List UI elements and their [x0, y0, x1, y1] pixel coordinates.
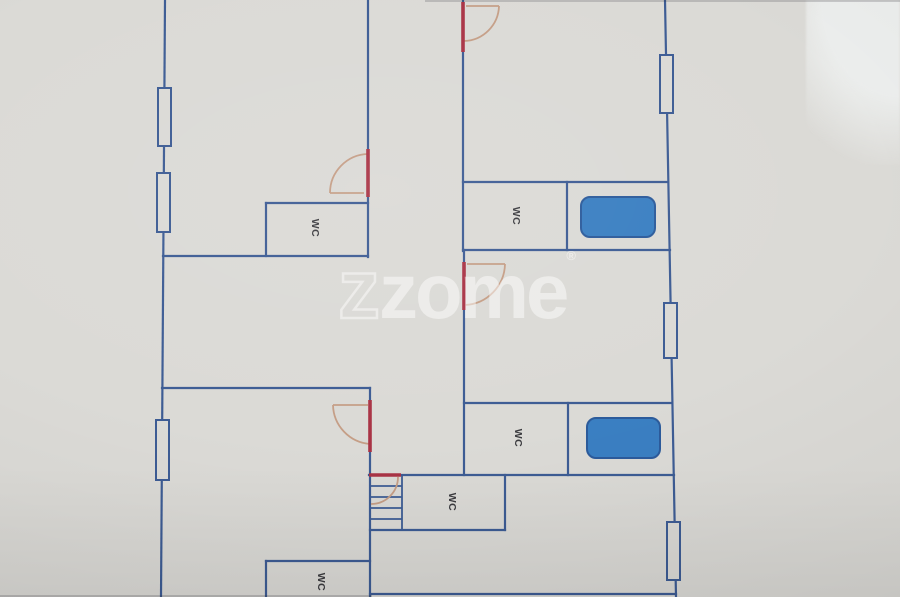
- wc-label-center-bottom: WC: [446, 493, 458, 512]
- bathtub-middle: [587, 418, 660, 458]
- wc-label-upper-right: WC: [510, 207, 522, 226]
- window-upper-right: [660, 55, 673, 113]
- wc-label-upper-left: WC: [309, 219, 321, 238]
- walls: [161, 0, 676, 597]
- wc-label-middle-right: WC: [512, 429, 524, 448]
- windows: [156, 55, 680, 580]
- door-arc-upper-left-room: [330, 154, 368, 193]
- window-upper-left-1: [158, 88, 171, 146]
- floorplan-photo: WC WC WC WC WC zzome®: [0, 0, 900, 597]
- window-lower-left: [156, 420, 169, 480]
- wc-label-lower-left: WC: [315, 573, 327, 592]
- door-arc-staircase: [371, 477, 398, 504]
- door-arc-upper-right-room: [464, 6, 499, 41]
- door-openings: [368, 2, 464, 475]
- floorplan-drawing: WC WC WC WC WC: [0, 0, 900, 597]
- window-upper-left-2: [157, 173, 170, 232]
- door-arc-middle-right-room: [465, 264, 505, 305]
- door-arc-lower-left-room: [333, 405, 370, 444]
- window-lower-right: [667, 522, 680, 580]
- bathtub-upper: [581, 197, 655, 237]
- window-middle-right: [664, 303, 677, 358]
